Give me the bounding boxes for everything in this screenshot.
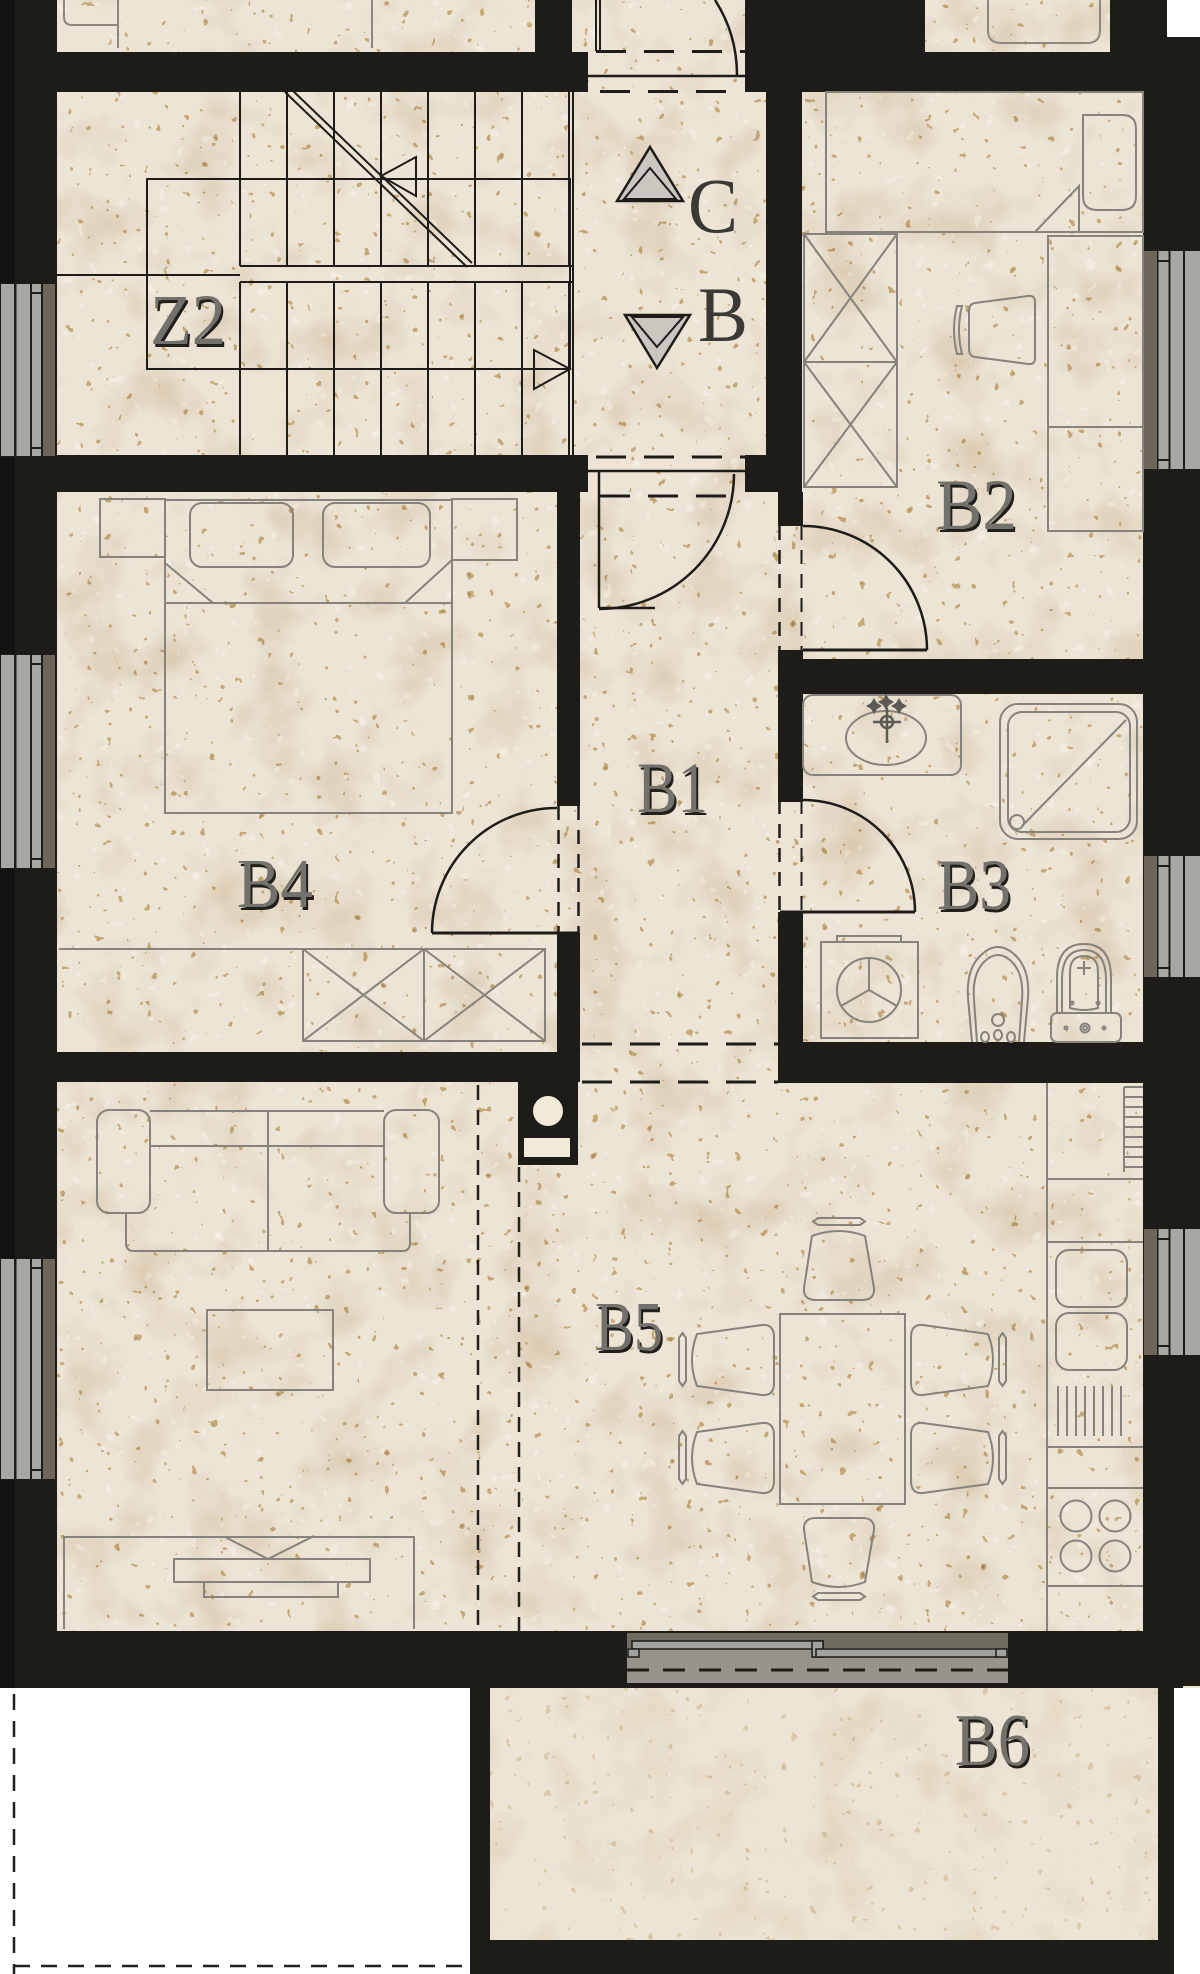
svg-text:B5: B5 — [595, 1289, 663, 1366]
svg-text:B3: B3 — [937, 845, 1011, 925]
svg-text:B1: B1 — [637, 748, 708, 828]
svg-text:B6: B6 — [955, 1700, 1030, 1782]
svg-text:C: C — [688, 162, 738, 249]
svg-text:B2: B2 — [936, 465, 1017, 545]
svg-text:Z2: Z2 — [150, 280, 226, 360]
svg-text:B4: B4 — [237, 846, 313, 923]
svg-text:B: B — [698, 271, 748, 358]
